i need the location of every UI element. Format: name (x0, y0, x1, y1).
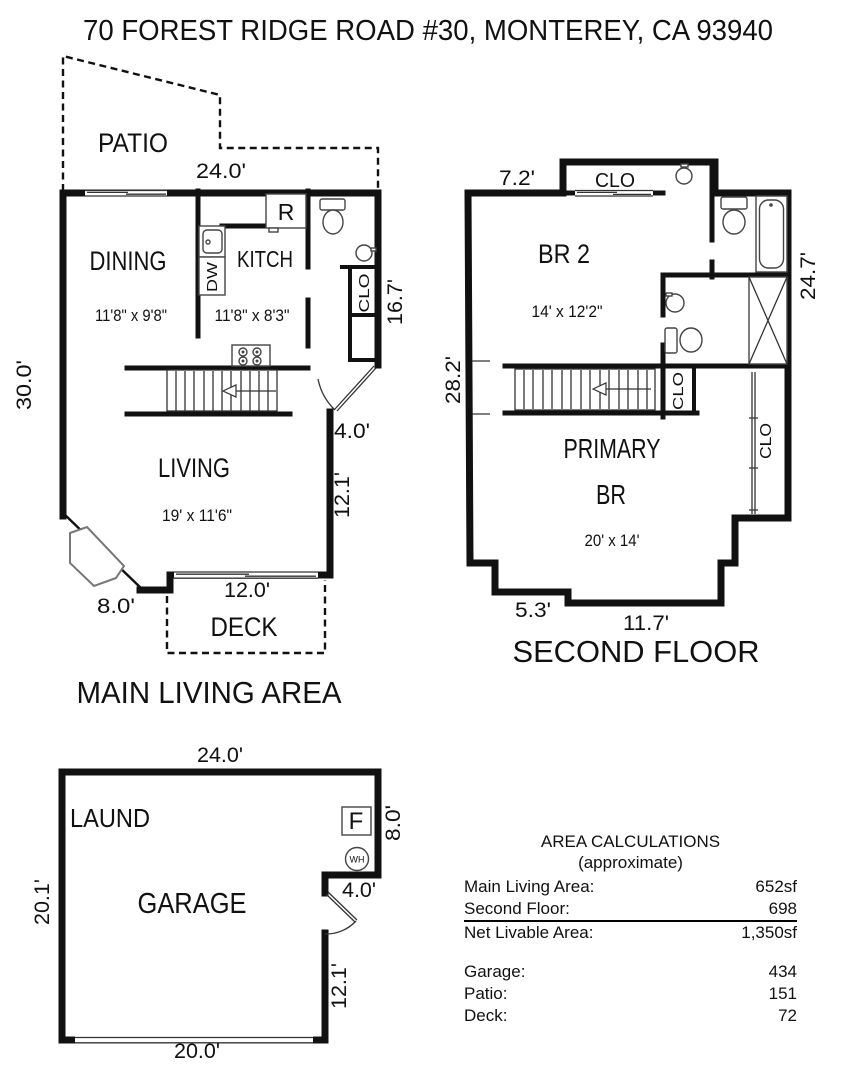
main-dim-deck: 12.0' (224, 579, 270, 602)
area-row-value: 72 (778, 1005, 797, 1026)
second-floor-plan: 7.2' CLO BR 2 14' x 12'2" 24.7' 28.2' CL… (442, 162, 820, 669)
area-row-value: 1,350sf (741, 922, 797, 943)
primary-size: 20' x 14' (585, 531, 640, 550)
primary-closet-label: CLO (758, 423, 775, 459)
main-dim-right-upper: 16.7' (384, 279, 407, 325)
primary-closet-sliding-door (749, 372, 758, 514)
bathtub (756, 196, 787, 272)
floorplan-page: 70 FOREST RIDGE ROAD #30, MONTEREY, CA 9… (0, 0, 858, 1080)
kitchen-sink (199, 226, 225, 257)
main-dim-bottom-left: 8.0' (97, 595, 135, 618)
garage-dim-top: 24.0' (197, 744, 243, 767)
shower (749, 277, 787, 364)
dishwasher-label: DW (204, 261, 221, 292)
area-calc-title: AREA CALCULATIONS (464, 831, 797, 852)
page-title: 70 FOREST RIDGE ROAD #30, MONTEREY, CA 9… (83, 15, 773, 47)
stairs-arrow (223, 385, 236, 397)
main-lower-walls (140, 412, 330, 590)
area-row-value: 151 (769, 983, 797, 1004)
kitchen-label: KITCH (237, 246, 293, 272)
area-row-garage: Garage: 434 (464, 961, 797, 983)
patio-label: PATIO (98, 128, 168, 158)
bath2-sink (666, 293, 684, 312)
water-heater-label: WH (350, 855, 365, 865)
garage-label: GARAGE (138, 888, 247, 920)
br2-label: BR 2 (538, 239, 590, 269)
stair-dim-ticks (472, 361, 490, 414)
area-calc-subtitle: (approximate) (464, 852, 797, 873)
area-calculations: AREA CALCULATIONS (approximate) Main Liv… (464, 831, 797, 1027)
kitchen-size: 11'8" x 8'3" (215, 307, 290, 325)
garage-dim-right-upper: 8.0' (382, 805, 405, 841)
area-row-main-living: Main Living Area: 652sf (464, 876, 797, 898)
entry-door (318, 366, 376, 411)
furnace-label: F (349, 808, 364, 835)
primary-br-label-1: PRIMARY (564, 433, 661, 464)
second-dim-bottom-step: 5.3' (515, 599, 551, 622)
main-dim-left: 30.0' (13, 360, 36, 410)
hall-closet-label: CLO (670, 372, 687, 410)
area-row-label: Net Livable Area: (464, 922, 593, 943)
second-dim-right: 24.7' (797, 252, 820, 300)
area-calc-spacer (464, 944, 797, 961)
area-row-deck: Deck: 72 (464, 1005, 797, 1027)
top-closet-label: CLO (595, 170, 635, 192)
refrigerator-label: R (278, 199, 295, 225)
dining-size: 11'8" x 9'8" (95, 307, 167, 325)
main-stairs (167, 370, 277, 411)
area-row-value: 698 (769, 898, 797, 919)
second-dim-bottom: 11.7' (623, 612, 669, 635)
br2-size: 14' x 12'2" (532, 303, 603, 321)
garage-plan: 24.0' LAUND F WH 8.0' 4.0' GARAGE 20.1' … (31, 744, 405, 1063)
halfbath-toilet (320, 199, 345, 234)
second-dim-left: 28.2' (442, 356, 465, 404)
living-sliding-door (174, 572, 318, 579)
main-dim-entry: 4.0' (334, 420, 370, 443)
living-size: 19' x 11'6" (162, 507, 232, 525)
garage-dim-left: 20.1' (31, 879, 54, 925)
halfbath-sink (356, 245, 376, 261)
upper-bath-toilet (721, 197, 747, 234)
primary-br-label-2: BR (596, 479, 626, 510)
laundry-label: LAUND (70, 803, 150, 833)
area-row-net-livable: Net Livable Area: 1,350sf (464, 922, 797, 944)
fireplace (70, 527, 124, 586)
main-floor-plan: PATIO 24.0' DINING 11'8" x 9'8" KITCH 11… (13, 56, 407, 710)
garage-dim-step: 4.0' (342, 879, 376, 902)
main-dim-top: 24.0' (196, 160, 246, 183)
main-closet-label: CLO (356, 274, 373, 313)
dining-window (85, 190, 167, 197)
dining-label: DINING (90, 246, 167, 276)
stove (232, 345, 270, 366)
area-row-label: Second Floor: (464, 898, 570, 919)
area-row-label: Garage: (464, 961, 525, 982)
garage-dim-right-lower: 12.1' (328, 963, 351, 1009)
area-row-label: Deck: (464, 1005, 507, 1026)
second-dim-top-left: 7.2' (499, 167, 535, 190)
area-row-value: 652sf (755, 876, 797, 897)
second-stairs (515, 369, 655, 410)
main-dim-right-lower: 12.1' (331, 472, 354, 518)
area-row-label: Patio: (464, 983, 507, 1004)
main-floor-caption: MAIN LIVING AREA (77, 675, 342, 710)
area-row-second-floor: Second Floor: 698 (464, 898, 797, 922)
second-floor-caption: SECOND FLOOR (513, 634, 760, 669)
deck-label: DECK (211, 612, 278, 642)
living-label: LIVING (158, 453, 230, 483)
vanity-sink (676, 164, 692, 184)
garage-dim-bottom: 20.0' (174, 1040, 220, 1063)
area-row-value: 434 (769, 961, 797, 982)
area-row-label: Main Living Area: (464, 876, 594, 897)
bath2-toilet (665, 328, 702, 353)
area-row-patio: Patio: 151 (464, 983, 797, 1005)
